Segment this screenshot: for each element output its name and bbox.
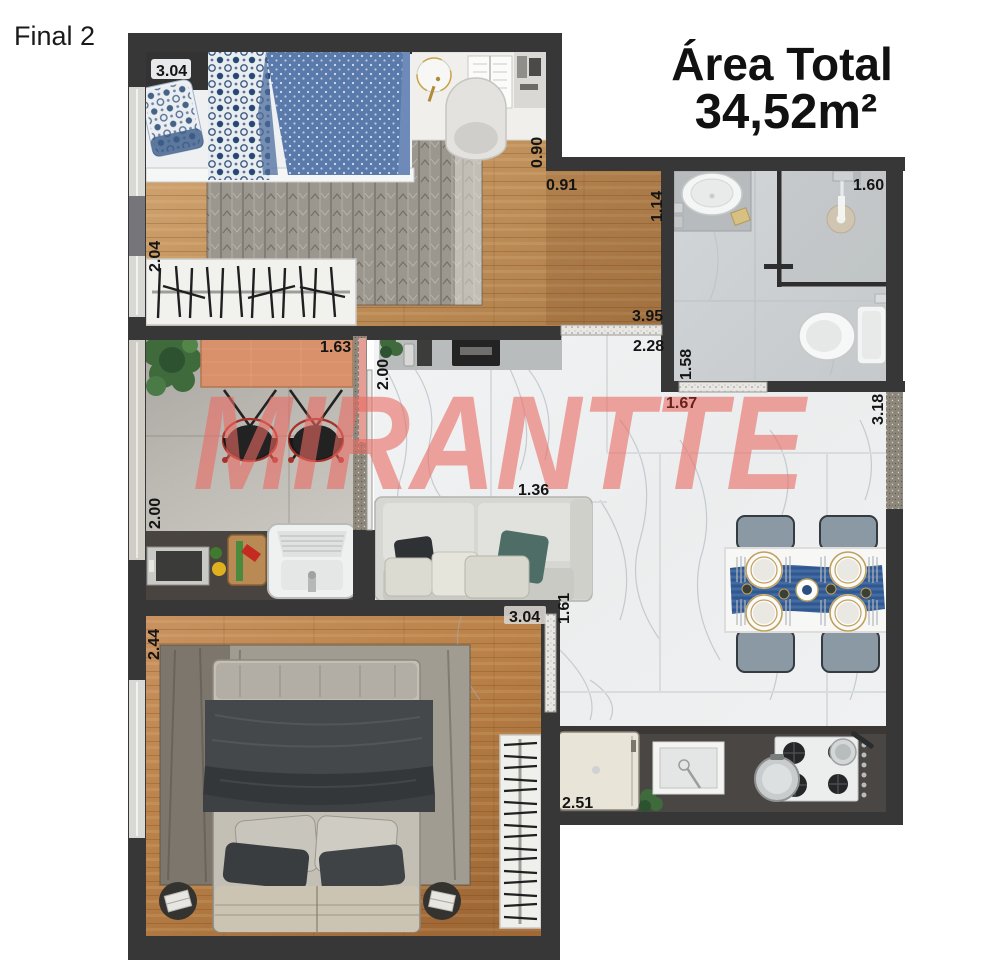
svg-text:1.67: 1.67: [666, 395, 697, 412]
svg-text:1.63: 1.63: [320, 339, 351, 356]
svg-text:1.61: 1.61: [556, 593, 573, 624]
svg-text:3.04: 3.04: [156, 63, 187, 80]
svg-text:2.04: 2.04: [147, 241, 164, 272]
svg-text:0.91: 0.91: [546, 177, 577, 194]
svg-text:2.51: 2.51: [562, 795, 593, 812]
svg-text:1.14: 1.14: [649, 191, 666, 222]
svg-text:MIRANTTE: MIRANTTE: [193, 369, 808, 518]
svg-text:Área Total: Área Total: [671, 38, 893, 90]
svg-text:1.36: 1.36: [518, 482, 549, 499]
svg-text:2.44: 2.44: [146, 629, 163, 660]
svg-text:0.90: 0.90: [529, 137, 546, 168]
svg-text:1.58: 1.58: [678, 349, 695, 380]
svg-text:2.00: 2.00: [375, 359, 392, 390]
svg-text:3.18: 3.18: [870, 394, 887, 425]
svg-text:2.00: 2.00: [147, 498, 164, 529]
svg-text:3.04: 3.04: [509, 609, 540, 626]
svg-text:34,52m²: 34,52m²: [695, 85, 878, 139]
svg-text:2.28: 2.28: [633, 338, 664, 355]
svg-text:Final 2: Final 2: [14, 21, 95, 51]
svg-text:3.95: 3.95: [632, 308, 663, 325]
svg-text:1.60: 1.60: [853, 177, 884, 194]
